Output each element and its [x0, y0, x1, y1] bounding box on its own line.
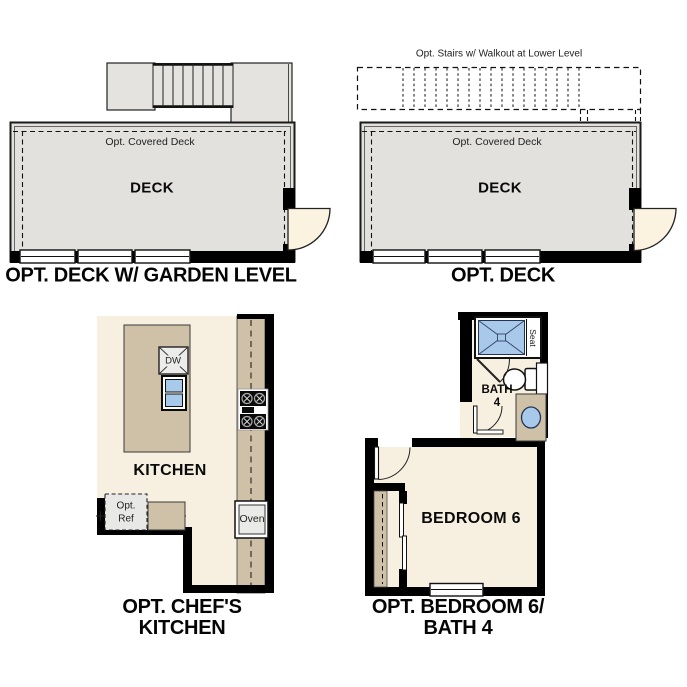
bedroom-bath-caption-line1: OPT. BEDROOM 6/ — [372, 597, 544, 618]
opt-ref-label-line1: Opt. — [117, 501, 136, 514]
floor-plan-drawing — [0, 0, 687, 687]
bath-label-line1: BATH — [481, 384, 512, 397]
deck-room-label-1: DECK — [130, 180, 174, 197]
vanity-icon — [516, 394, 546, 441]
optional-stairs-dashed — [358, 68, 641, 122]
seat-label: Seat — [528, 329, 538, 347]
deck-caption: OPT. DECK — [451, 265, 555, 288]
floor-plan-canvas: Opt. Covered Deck DECK OPT. DECK W/ GARD… — [0, 0, 687, 687]
bedroom-bath-caption-line2: BATH 4 — [372, 618, 544, 639]
deck-garden-caption: OPT. DECK W/ GARDEN LEVEL — [5, 265, 296, 288]
opt-stairs-label: Opt. Stairs w/ Walkout at Lower Level — [416, 49, 582, 60]
bedroom-bath-caption: OPT. BEDROOM 6/ BATH 4 — [372, 597, 544, 639]
bedroom-room-label: BEDROOM 6 — [421, 510, 521, 528]
opt-ref-label: Opt. Ref — [117, 501, 136, 526]
covered-deck-label-2: Opt. Covered Deck — [452, 136, 541, 148]
chefs-kitchen-caption-line2: KITCHEN — [122, 618, 241, 639]
deck-garden-plan — [10, 63, 330, 263]
deck-windows — [20, 250, 190, 263]
bedroom-window-icon — [430, 584, 483, 597]
kitchen-cabinet — [148, 502, 185, 530]
closet-door-panel — [403, 536, 407, 570]
deck-plan — [358, 68, 677, 264]
door-swing-icon — [288, 209, 330, 251]
closet-door-panel — [400, 503, 404, 537]
dishwasher-label: DW — [164, 356, 182, 367]
door-swing-icon — [634, 209, 676, 251]
bedroom6-bath4-plan — [365, 312, 548, 596]
bath-label-line2: 4 — [481, 397, 512, 410]
covered-deck-label-1: Opt. Covered Deck — [105, 136, 194, 148]
dashed-stair-drops — [581, 110, 641, 121]
chefs-kitchen-plan — [96, 314, 274, 593]
chefs-kitchen-caption: OPT. CHEF'S KITCHEN — [122, 597, 241, 639]
bath-doorway-floor — [460, 402, 472, 438]
sink-icon — [162, 376, 186, 410]
opt-ref-label-line2: Ref — [117, 513, 136, 526]
deck-room-label-2: DECK — [478, 180, 522, 197]
oven-label: Oven — [239, 513, 264, 525]
dashed-stair-treads — [403, 68, 579, 108]
stairs-structure — [107, 63, 292, 125]
bath-label: BATH 4 — [481, 384, 512, 410]
kitchen-room-label: KITCHEN — [133, 462, 206, 480]
cooktop-icon — [238, 389, 268, 430]
deck-windows — [373, 250, 540, 263]
chefs-kitchen-caption-line1: OPT. CHEF'S — [122, 597, 241, 618]
